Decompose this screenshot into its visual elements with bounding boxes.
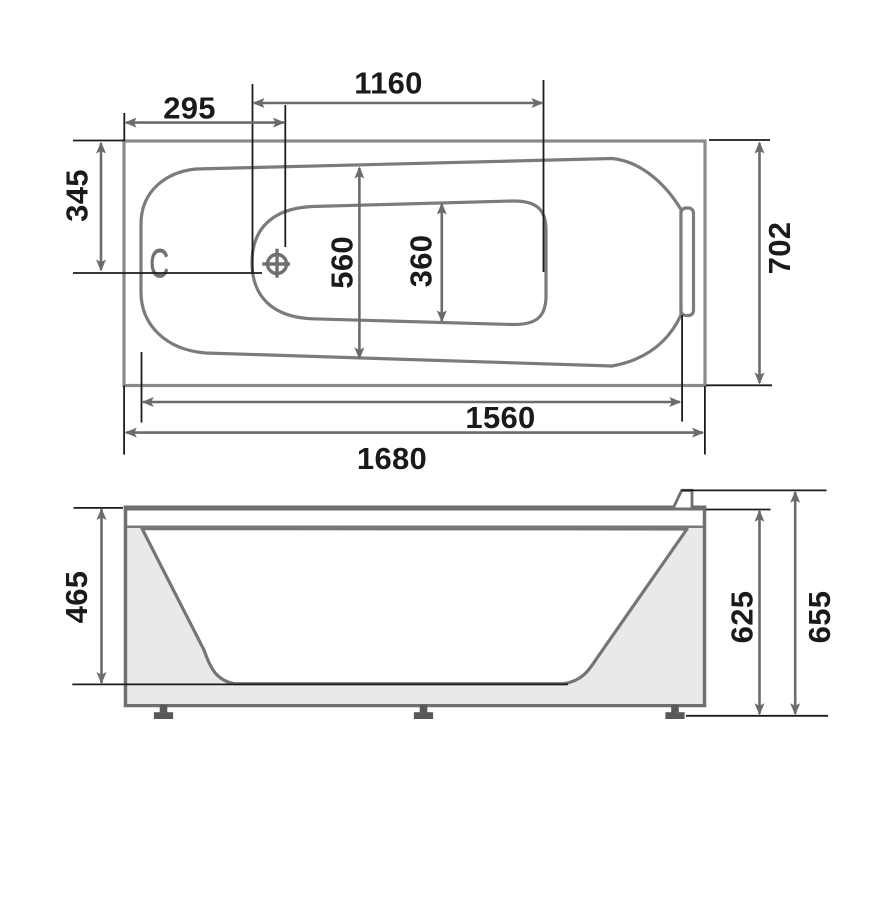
svg-text:1160: 1160 bbox=[354, 66, 422, 101]
svg-text:655: 655 bbox=[802, 591, 837, 644]
svg-text:1680: 1680 bbox=[357, 441, 427, 476]
svg-text:560: 560 bbox=[325, 236, 360, 289]
svg-text:1560: 1560 bbox=[465, 400, 535, 435]
svg-text:625: 625 bbox=[725, 591, 760, 644]
svg-text:345: 345 bbox=[60, 169, 95, 222]
svg-text:C: C bbox=[150, 242, 169, 287]
svg-text:360: 360 bbox=[404, 235, 439, 288]
svg-text:702: 702 bbox=[762, 222, 797, 275]
svg-text:295: 295 bbox=[163, 91, 216, 126]
svg-text:465: 465 bbox=[59, 571, 94, 624]
